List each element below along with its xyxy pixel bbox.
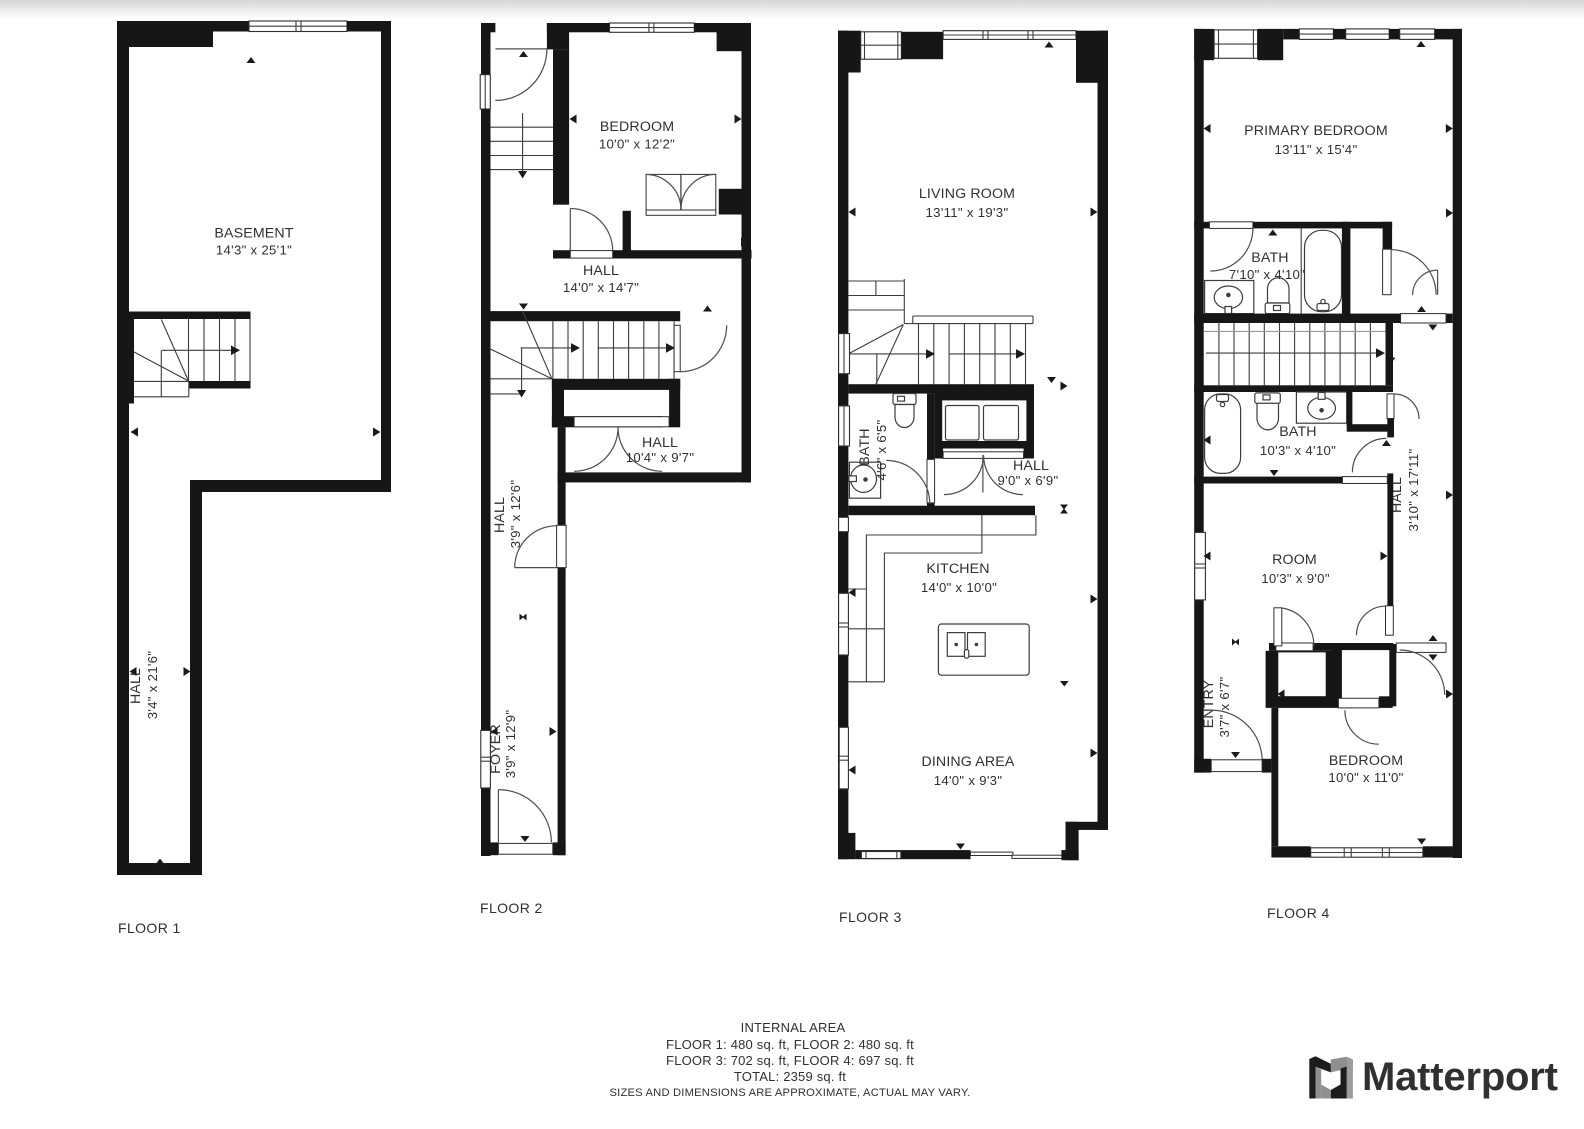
svg-text:BEDROOM: BEDROOM (600, 119, 674, 135)
svg-text:TOTAL: 2359 sq. ft: TOTAL: 2359 sq. ft (734, 1069, 846, 1084)
svg-text:10'4" x 9'7": 10'4" x 9'7" (626, 450, 695, 465)
svg-text:9'0" x 6'9": 9'0" x 6'9" (998, 473, 1059, 488)
svg-text:SIZES AND DIMENSIONS ARE APPRO: SIZES AND DIMENSIONS ARE APPROXIMATE, AC… (609, 1087, 970, 1099)
svg-text:7'10" x 4'10": 7'10" x 4'10" (1229, 267, 1305, 282)
svg-text:KITCHEN: KITCHEN (926, 561, 989, 577)
svg-text:BATH: BATH (1279, 424, 1316, 440)
svg-text:FLOOR 2: FLOOR 2 (480, 900, 543, 916)
svg-text:FLOOR 3: 702 sq. ft, FLOOR 4:: FLOOR 3: 702 sq. ft, FLOOR 4: 697 sq. ft (666, 1053, 914, 1068)
svg-text:FLOOR 3: FLOOR 3 (839, 909, 902, 925)
svg-text:ROOM: ROOM (1272, 552, 1317, 568)
svg-text:13'11" x 19'3": 13'11" x 19'3" (926, 205, 1009, 220)
svg-text:14'3" x 25'1": 14'3" x 25'1" (216, 243, 292, 258)
svg-text:BATH: BATH (1251, 250, 1288, 266)
svg-text:BATH: BATH (857, 428, 873, 465)
svg-text:13'11" x 15'4": 13'11" x 15'4" (1275, 142, 1358, 157)
svg-text:14'0" x 14'7": 14'0" x 14'7" (563, 280, 639, 295)
svg-text:14'0" x 10'0": 14'0" x 10'0" (921, 580, 997, 595)
svg-text:3'9" x 12'6": 3'9" x 12'6" (508, 480, 523, 549)
svg-text:10'0" x 11'0": 10'0" x 11'0" (1328, 770, 1403, 785)
svg-text:HALL: HALL (1013, 458, 1049, 474)
svg-text:ENTRY: ENTRY (1201, 679, 1217, 728)
svg-text:HALL: HALL (492, 497, 508, 533)
svg-text:14'0" x 9'3": 14'0" x 9'3" (934, 773, 1003, 788)
svg-text:FLOOR 1: 480 sq. ft, FLOOR 2:: FLOOR 1: 480 sq. ft, FLOOR 2: 480 sq. ft (666, 1037, 914, 1052)
svg-text:3'4" x 21'6": 3'4" x 21'6" (145, 651, 160, 720)
svg-text:3'10" x 17'11": 3'10" x 17'11" (1406, 449, 1421, 532)
svg-text:INTERNAL AREA: INTERNAL AREA (741, 1020, 846, 1035)
svg-text:10'0" x 12'2": 10'0" x 12'2" (599, 137, 675, 152)
svg-text:3'9" x 12'9": 3'9" x 12'9" (503, 710, 518, 779)
svg-text:LIVING ROOM: LIVING ROOM (919, 186, 1015, 202)
svg-text:10'3" x 4'10": 10'3" x 4'10" (1260, 443, 1336, 458)
svg-text:FLOOR 1: FLOOR 1 (118, 920, 181, 936)
svg-text:Matterport: Matterport (1362, 1055, 1558, 1099)
svg-text:HALL: HALL (583, 263, 619, 279)
svg-text:BEDROOM: BEDROOM (1329, 753, 1403, 769)
svg-text:BASEMENT: BASEMENT (214, 226, 293, 242)
svg-text:PRIMARY BEDROOM: PRIMARY BEDROOM (1244, 123, 1388, 139)
svg-text:3'7" x 6'7": 3'7" x 6'7" (1217, 677, 1232, 738)
svg-text:HALL: HALL (642, 435, 678, 451)
svg-text:4'6" x 6'5": 4'6" x 6'5" (874, 420, 889, 481)
svg-text:FLOOR 4: FLOOR 4 (1267, 905, 1330, 921)
svg-text:10'3" x 9'0": 10'3" x 9'0" (1261, 571, 1330, 586)
svg-text:DINING AREA: DINING AREA (921, 754, 1014, 770)
